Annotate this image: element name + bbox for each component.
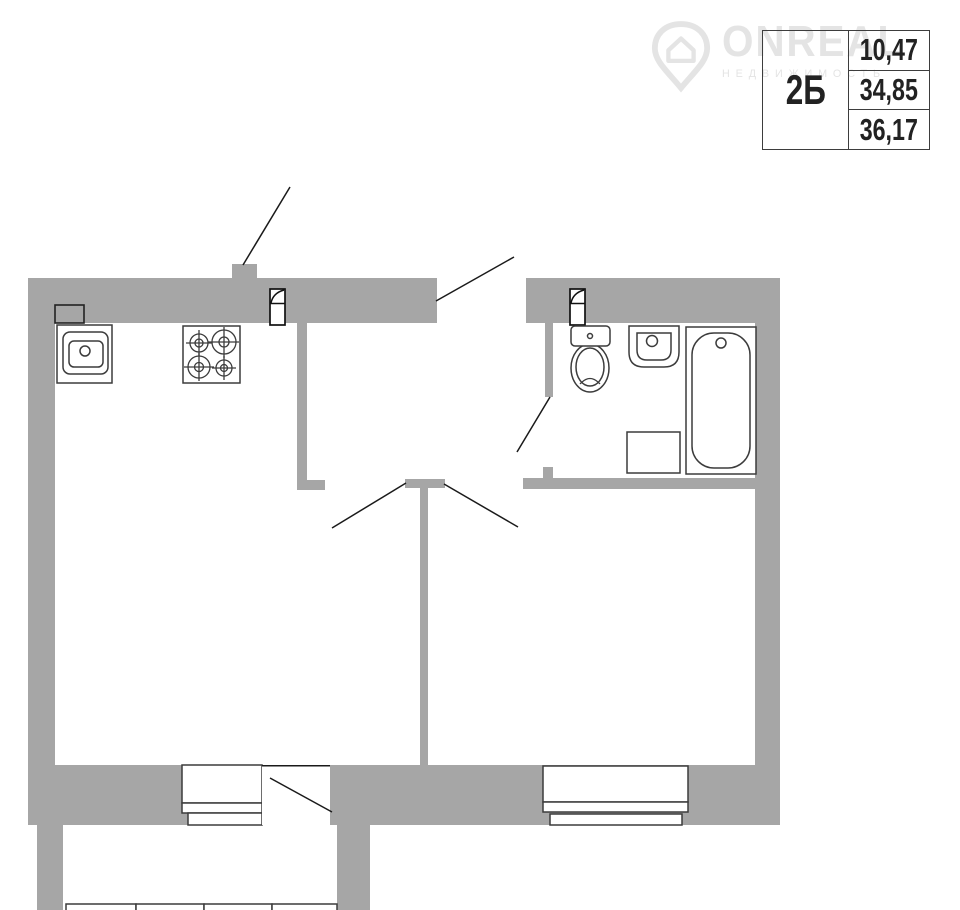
gas-stove-icon [183, 326, 240, 383]
unit-number: 2Б [785, 66, 825, 114]
entry-door-line [436, 257, 514, 301]
area-value-1: 10,47 [860, 32, 918, 68]
wall-top-left [28, 278, 437, 323]
bathroom-door-line [517, 397, 550, 452]
wall-balcony-right [337, 822, 370, 910]
bedroom-door-line [444, 484, 518, 527]
toilet-icon [571, 326, 610, 392]
wall-kitchen-hall-stub [297, 480, 325, 490]
area-values-column: 10,47 34,85 36,17 [849, 31, 929, 149]
area-value-3: 36,17 [860, 112, 918, 148]
wall-entry-pilaster [232, 264, 257, 280]
balcony-glazing [66, 904, 337, 910]
bathtub-icon [686, 327, 756, 474]
kitchen-shaft-box [55, 305, 84, 323]
location-pin-house-icon [650, 20, 712, 94]
area-info-table: 2Б 10,47 34,85 36,17 [762, 30, 930, 150]
wall-left [28, 278, 55, 823]
wall-top-right [526, 278, 780, 323]
wall-right [755, 278, 780, 825]
kitchen-sink-icon [57, 325, 112, 383]
unit-number-cell: 2Б [763, 31, 849, 149]
washing-machine-icon [627, 432, 680, 473]
area-value-row: 10,47 [849, 31, 929, 71]
door-lines [243, 187, 550, 528]
wall-room-partition [420, 488, 428, 765]
living-door-line [332, 483, 406, 528]
entry-leader-line [243, 187, 290, 265]
wall-kitchen-hall [297, 323, 307, 482]
wall-hall-pier [405, 479, 445, 488]
wall-balcony-left [37, 820, 63, 910]
floor-plan-page: ONREAL НЕДВИЖИМОСТЬ 2Б 10,47 34,85 36,17 [0, 0, 960, 910]
area-value-2: 34,85 [860, 72, 918, 108]
balcony-door [262, 765, 332, 825]
wash-basin-icon [629, 326, 679, 367]
area-value-row: 34,85 [849, 71, 929, 111]
wall-bathroom-left [545, 323, 553, 397]
living-room-window [182, 765, 262, 825]
bathroom-vent-duct-icon [570, 289, 585, 325]
bedroom-window [543, 766, 688, 825]
wall-bathroom-bottom [523, 478, 755, 489]
area-value-row: 36,17 [849, 110, 929, 149]
kitchen-vent-duct-icon [270, 289, 285, 325]
